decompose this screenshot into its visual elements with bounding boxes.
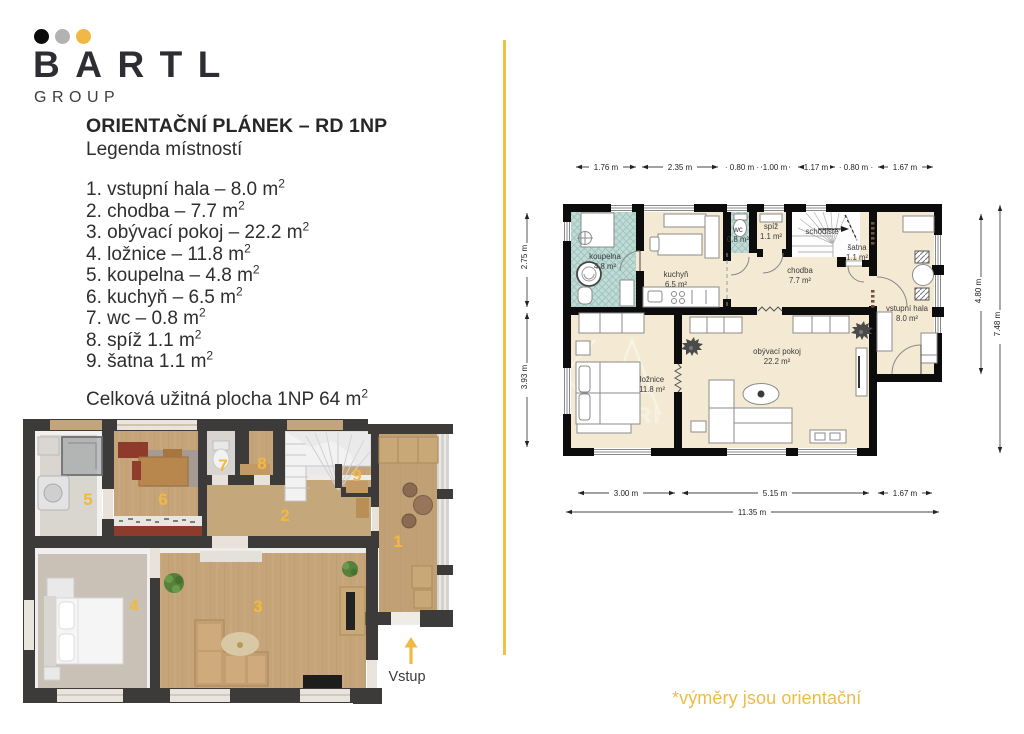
svg-text:8: 8 xyxy=(257,454,266,473)
svg-text:ložnice: ložnice xyxy=(640,375,664,384)
svg-text:7.7 m²: 7.7 m² xyxy=(789,276,811,285)
svg-text:4: 4 xyxy=(129,596,139,615)
svg-text:1.17 m: 1.17 m xyxy=(804,163,829,172)
svg-text:1: 1 xyxy=(393,532,402,551)
svg-text:3: 3 xyxy=(253,597,262,616)
svg-text:5: 5 xyxy=(83,490,92,509)
svg-text:1.76 m: 1.76 m xyxy=(594,163,619,172)
svg-text:7.48 m: 7.48 m xyxy=(993,311,1002,336)
svg-text:7: 7 xyxy=(218,456,227,475)
svg-text:9: 9 xyxy=(352,466,361,485)
svg-text:11.35 m: 11.35 m xyxy=(738,508,767,517)
svg-text:2.75 m: 2.75 m xyxy=(520,244,529,269)
svg-text:koupelna: koupelna xyxy=(589,252,621,261)
svg-text:spíž: spíž xyxy=(764,222,778,231)
svg-text:0.8 m²: 0.8 m² xyxy=(727,235,749,244)
svg-text:11.8 m²: 11.8 m² xyxy=(639,385,665,394)
svg-text:6: 6 xyxy=(158,490,167,509)
svg-text:4.80 m: 4.80 m xyxy=(974,278,983,303)
svg-text:2: 2 xyxy=(280,506,289,525)
svg-text:3.00 m: 3.00 m xyxy=(614,489,639,498)
svg-text:6.5 m²: 6.5 m² xyxy=(665,280,687,289)
svg-text:· 0.80 m ·: · 0.80 m · xyxy=(839,163,873,172)
svg-text:schodiště: schodiště xyxy=(806,227,839,236)
svg-text:Vstup: Vstup xyxy=(388,669,425,685)
svg-text:8.0 m²: 8.0 m² xyxy=(896,314,918,323)
svg-text:wc: wc xyxy=(732,225,743,234)
svg-text:šatna: šatna xyxy=(847,243,867,252)
svg-text:4.8 m²: 4.8 m² xyxy=(594,262,616,271)
svg-text:1.00 m: 1.00 m xyxy=(763,163,788,172)
svg-text:1.1 m²: 1.1 m² xyxy=(760,232,782,241)
svg-text:3.93 m: 3.93 m xyxy=(520,364,529,389)
svg-text:· 0.80 m ·: · 0.80 m · xyxy=(725,163,759,172)
svg-text:5.15 m: 5.15 m xyxy=(763,489,788,498)
svg-text:1.67 m: 1.67 m xyxy=(893,163,918,172)
svg-text:1.1 m²: 1.1 m² xyxy=(846,253,868,262)
svg-text:vstupní hala: vstupní hala xyxy=(886,304,929,313)
svg-text:2.35 m: 2.35 m xyxy=(668,163,693,172)
svg-text:22.2 m²: 22.2 m² xyxy=(764,357,791,366)
svg-text:kuchyň: kuchyň xyxy=(664,270,689,279)
svg-text:obývací pokoj: obývací pokoj xyxy=(753,347,801,356)
svg-text:1.67 m: 1.67 m xyxy=(893,489,918,498)
svg-text:chodba: chodba xyxy=(787,266,813,275)
